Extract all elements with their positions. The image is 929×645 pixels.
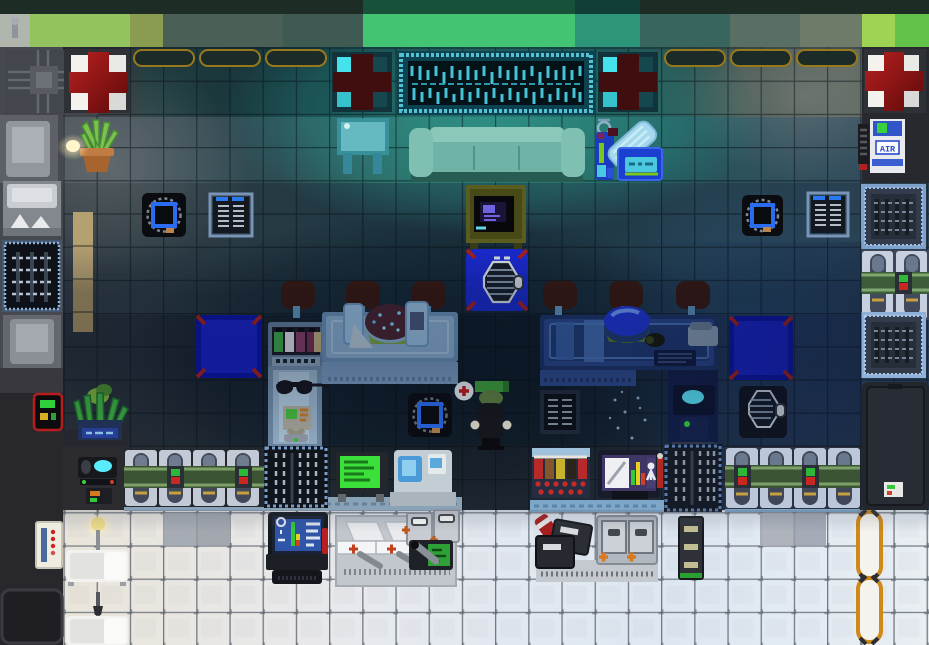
- svg-text:AIR: AIR: [880, 145, 896, 155]
